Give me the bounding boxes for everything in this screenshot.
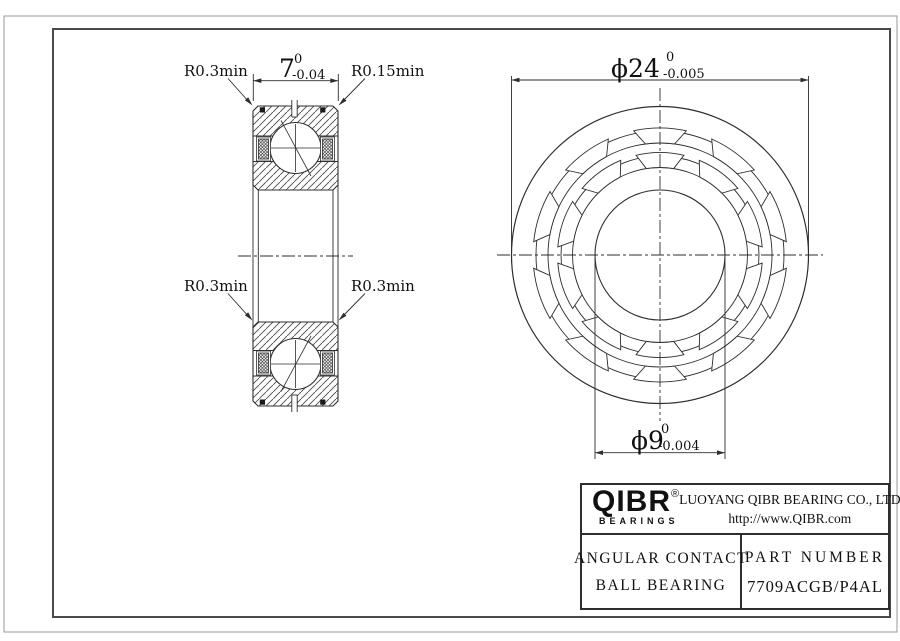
radius-label: R0.3min bbox=[351, 277, 415, 295]
company-info: LUOYANG QIBR BEARING CO., LTD http://www… bbox=[679, 485, 900, 533]
width-tol-upper: 0 bbox=[294, 52, 302, 67]
bore-tol-upper: 0 bbox=[661, 422, 669, 437]
cage-pocket bbox=[712, 336, 755, 371]
groove-mark bbox=[320, 400, 325, 405]
cage-pocket bbox=[534, 192, 559, 242]
cage-pocket bbox=[566, 336, 609, 371]
title-block: QIBR® BEARINGS LUOYANG QIBR BEARING CO.,… bbox=[580, 483, 890, 610]
bore-tol-lower: -0.004 bbox=[658, 439, 700, 454]
front-view bbox=[497, 76, 823, 459]
width-tol-lower: -0.04 bbox=[292, 68, 325, 83]
groove-mark bbox=[260, 400, 265, 405]
cage-right bbox=[323, 353, 333, 373]
title-block-bottom-row: ANGULAR CONTACT BALL BEARING PART NUMBER… bbox=[582, 535, 888, 610]
notch-top bbox=[292, 105, 297, 117]
arrowhead bbox=[330, 78, 338, 83]
cage-right bbox=[323, 139, 333, 159]
cage-left bbox=[259, 353, 269, 373]
radius-label: R0.3min bbox=[184, 277, 248, 295]
arrowhead bbox=[512, 78, 520, 83]
part-number-cell: PART NUMBER 7709ACGB/P4AL bbox=[742, 535, 888, 610]
od-dimension bbox=[512, 76, 809, 262]
radius-label: R0.15min bbox=[351, 62, 425, 80]
radius-label: R0.3min bbox=[184, 62, 248, 80]
part-number-label: PART NUMBER bbox=[745, 549, 885, 567]
cage-left bbox=[259, 139, 269, 159]
drawing-sheet: { "colors": { "line": "#333333", "backgr… bbox=[0, 0, 900, 636]
company-logo: QIBR® BEARINGS bbox=[582, 485, 679, 533]
cage-pocket bbox=[761, 268, 786, 318]
arrowhead bbox=[595, 450, 603, 455]
part-number-value: 7709ACGB/P4AL bbox=[747, 577, 883, 597]
arrowhead bbox=[801, 78, 809, 83]
logo-subtitle: BEARINGS bbox=[599, 516, 679, 526]
logo-text: QIBR bbox=[592, 485, 671, 518]
cage-pocket bbox=[558, 263, 582, 309]
product-line2: BALL BEARING bbox=[596, 577, 727, 595]
registered-mark: ® bbox=[671, 488, 679, 500]
product-line1: ANGULAR CONTACT bbox=[574, 550, 748, 568]
arrowhead bbox=[253, 78, 261, 83]
company-website: http://www.QIBR.com bbox=[728, 511, 851, 527]
cage-pocket bbox=[712, 139, 755, 174]
cage-pocket bbox=[738, 201, 762, 247]
arrowhead bbox=[717, 450, 725, 455]
od-value: ϕ24 bbox=[611, 54, 660, 83]
od-tol-upper: 0 bbox=[666, 50, 674, 65]
company-name: LUOYANG QIBR BEARING CO., LTD bbox=[679, 492, 900, 508]
od-tol-lower: -0.005 bbox=[663, 67, 705, 82]
groove-mark bbox=[260, 107, 265, 112]
cage-pocket bbox=[566, 139, 609, 174]
section-view bbox=[228, 74, 365, 412]
cage-pocket bbox=[761, 192, 786, 242]
groove-mark bbox=[320, 107, 325, 112]
section-top-block bbox=[253, 100, 338, 190]
cage-pocket bbox=[534, 268, 559, 318]
product-name-cell: ANGULAR CONTACT BALL BEARING bbox=[582, 535, 742, 610]
cage-pocket bbox=[558, 201, 582, 247]
title-block-top-row: QIBR® BEARINGS LUOYANG QIBR BEARING CO.,… bbox=[582, 485, 888, 535]
section-bottom-block bbox=[253, 322, 338, 412]
cage-pocket bbox=[738, 263, 762, 309]
notch-bottom bbox=[292, 395, 297, 407]
